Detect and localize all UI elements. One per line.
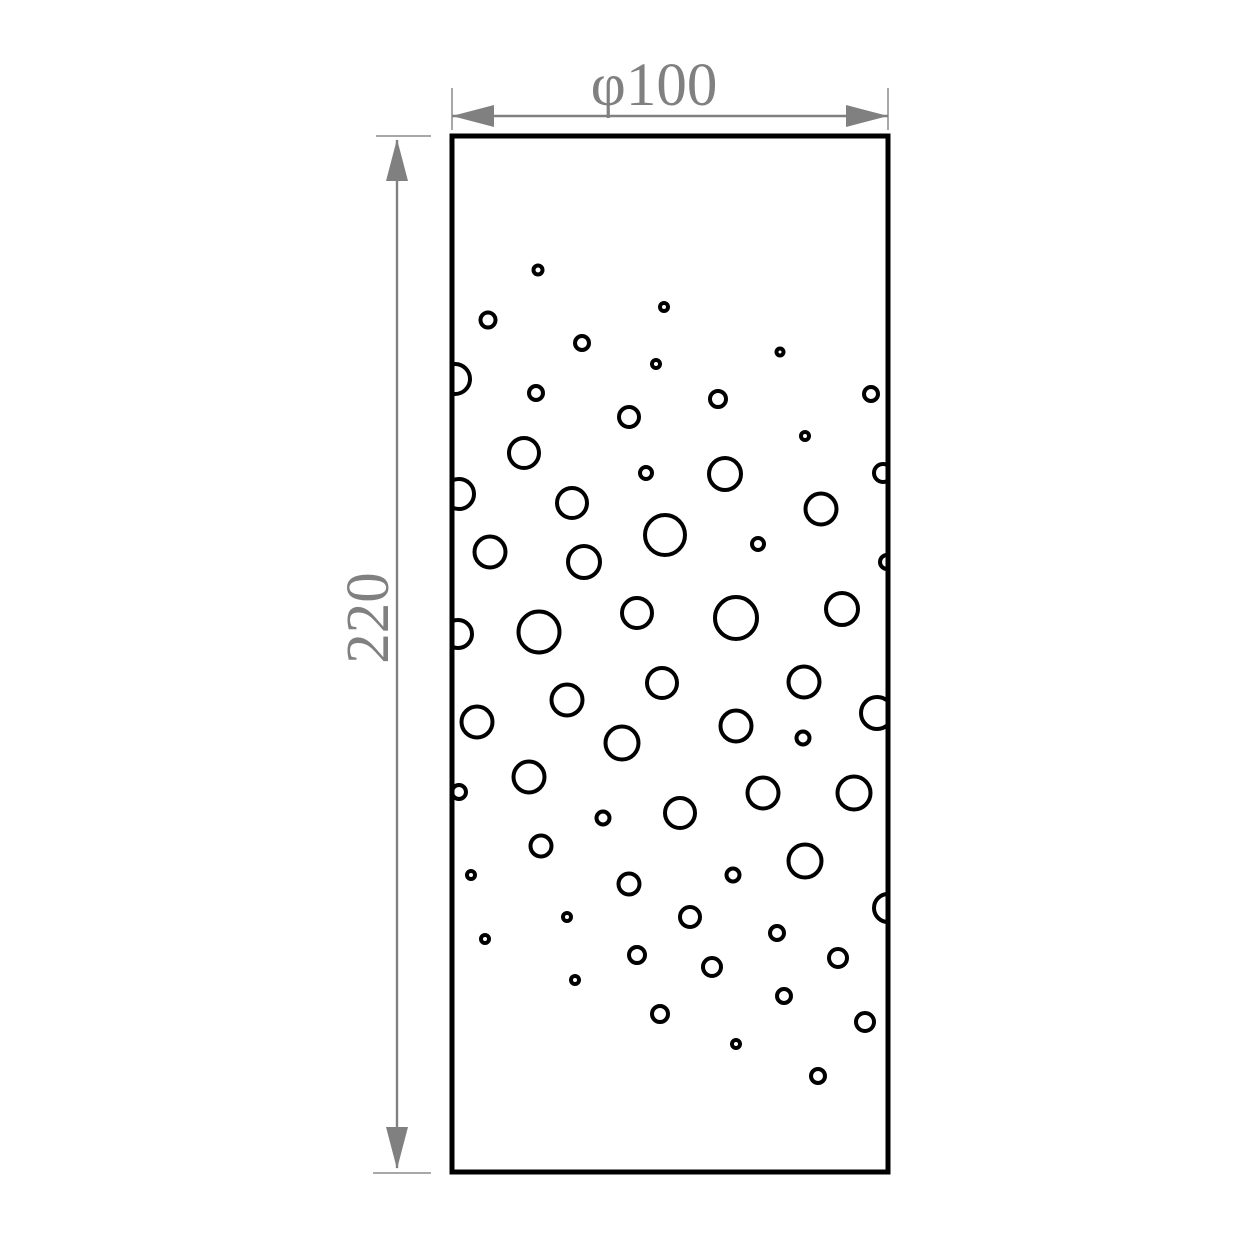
hole-circle [710,391,726,407]
hole-circle [563,913,571,921]
hole-circle [619,407,639,427]
hole-circle [606,727,639,760]
hole-circle [557,488,587,518]
hole-circle [652,360,660,368]
hole-circle [467,871,475,879]
width-arrow-left-icon [452,105,494,127]
hole-circle [519,612,560,653]
hole-circle [806,494,837,525]
hole-circle [715,597,757,639]
width-dimension: φ100 [452,52,888,130]
hole-circle [462,707,493,738]
hole-circle [440,364,470,394]
hole-circle [797,732,810,745]
panel-outline [452,136,888,1172]
hole-circle [721,711,752,742]
hole-circle [552,685,583,716]
hole-circle [571,976,579,984]
hole-circle [660,303,668,311]
hole-circle [727,869,740,882]
height-arrow-down-icon [386,1127,408,1169]
hole-circle [826,593,858,625]
hole-circle [752,538,764,550]
hole-circle [444,620,472,648]
hole-circle [529,386,543,400]
hole-circle [597,812,610,825]
height-dimension: 220 [335,136,431,1173]
hole-circle [732,1040,740,1048]
hole-circle [829,949,847,967]
hole-circle [475,537,506,568]
hole-circle [838,777,871,810]
hole-circle [864,387,878,401]
drawing-canvas: φ100 220 [0,0,1240,1240]
hole-circle [811,1069,825,1083]
hole-circle [777,349,784,356]
height-dimension-label: 220 [335,572,402,664]
height-arrow-up-icon [386,139,408,181]
hole-circle [652,1006,668,1022]
width-arrow-right-icon [846,105,888,127]
hole-circle [514,762,545,793]
hole-pattern [440,266,902,1084]
hole-circle [789,667,820,698]
hole-circle [629,947,645,963]
hole-circle [748,778,779,809]
hole-circle [481,935,489,943]
drawing-stage: φ100 220 [0,0,1240,1240]
hole-circle [647,668,677,698]
hole-circle [777,989,791,1003]
hole-circle [645,515,685,555]
hole-circle [680,907,700,927]
width-dimension-label: φ100 [591,52,718,119]
hole-circle [619,874,640,895]
hole-circle [789,845,822,878]
hole-circle [622,598,652,628]
hole-circle [575,336,589,350]
hole-circle [481,313,496,328]
hole-circle [801,432,809,440]
hole-circle [640,467,652,479]
hole-circle [568,546,600,578]
hole-circle [709,458,741,490]
hole-circle [534,266,543,275]
hole-circle [509,438,539,468]
hole-circle [531,836,552,857]
hole-circle [770,926,784,940]
hole-circle [665,798,695,828]
hole-circle [703,958,721,976]
hole-circle [444,479,474,509]
hole-circle [856,1013,874,1031]
